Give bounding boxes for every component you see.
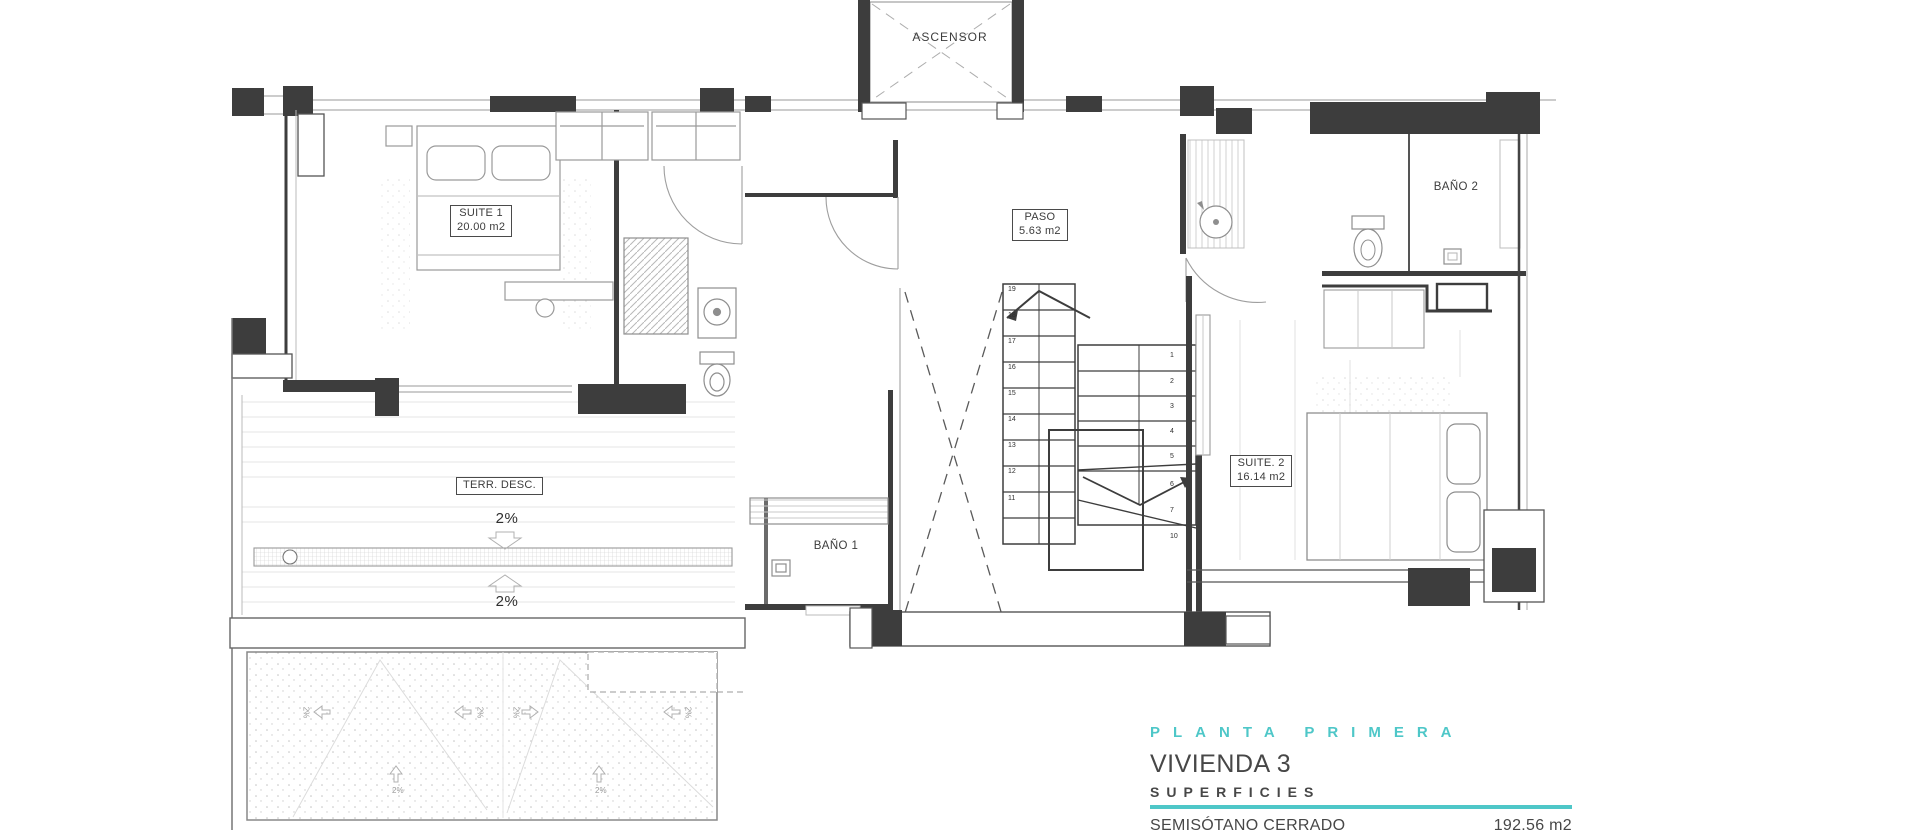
stair-step-number: 5 — [1170, 453, 1174, 460]
area-label: SEMISÓTANO CERRADO — [1150, 817, 1345, 835]
stair-step-number: 16 — [1008, 364, 1016, 371]
sink-icon — [1444, 249, 1461, 264]
room-label-paso: PASO 5.63 m2 — [1012, 209, 1068, 241]
slope-arrow-up-icon — [489, 575, 521, 592]
bano2 — [1180, 134, 1526, 276]
room-label-terraza: TERR. DESC. — [456, 477, 543, 495]
stair-step-number: 11 — [1008, 495, 1015, 502]
patio-slope-label: 2% — [301, 707, 310, 719]
stair-step-number: 17 — [1008, 338, 1016, 345]
patio — [247, 652, 745, 820]
suite1-chair — [536, 299, 554, 317]
elevator-shaft — [858, 0, 1024, 119]
stair-step-number: 14 — [1008, 416, 1016, 423]
pillow — [427, 146, 485, 180]
room-label-suite1: SUITE 1 20.00 m2 — [450, 205, 512, 237]
room-label-bano2: BAÑO 2 — [1434, 181, 1479, 193]
section-title: SUPERFICIES — [1150, 784, 1580, 800]
door-arcs — [664, 166, 1266, 302]
stair-step-number: 1 — [1170, 352, 1174, 359]
drain-icon — [283, 550, 297, 564]
pillow — [1447, 492, 1480, 552]
toilet-icon — [1354, 229, 1382, 267]
terrace-slope-up-label: 2% — [496, 593, 519, 610]
patio-notch — [588, 652, 717, 692]
room-label-suite2: SUITE. 2 16.14 m2 — [1230, 455, 1292, 487]
stair-step-number: 3 — [1170, 403, 1174, 410]
terrace-decking — [242, 402, 735, 602]
room-label-bano1: BAÑO 1 — [814, 540, 859, 552]
stair-step-number: 13 — [1008, 442, 1016, 449]
pillow — [492, 146, 550, 180]
room-label-ascensor: ASCENSOR — [912, 30, 987, 44]
stair-step-number: 7 — [1170, 507, 1174, 514]
stair-step-number: 4 — [1170, 428, 1174, 435]
slope-arrow-down-icon — [489, 532, 521, 549]
terrace-slope-down-label: 2% — [496, 510, 519, 527]
stair-upper-flight — [1003, 284, 1090, 544]
floor-plan-drawing — [0, 0, 1920, 837]
patio-slope-label: 2% — [392, 786, 404, 795]
stair-step-number: 19 — [1008, 286, 1016, 293]
stair-step-number: 10 — [1170, 533, 1178, 540]
title-block: PLANTA PRIMERA VIVIENDA 3 SUPERFICIES SE… — [1150, 724, 1580, 837]
patio-slope-label: 2% — [511, 707, 520, 719]
stair-step-number: 2 — [1170, 378, 1174, 385]
plan-title: PLANTA PRIMERA — [1150, 724, 1580, 741]
stair-step-number: 15 — [1008, 390, 1016, 397]
suite1-desk — [505, 282, 613, 300]
area-value: 192.56 m2 — [1494, 817, 1572, 835]
built-in-wardrobe — [556, 112, 740, 160]
patio-slope-label: 2% — [683, 707, 692, 719]
wardrobe-hatch — [624, 238, 688, 334]
dwelling-title: VIVIENDA 3 — [1150, 750, 1580, 779]
stair-step-number: 18 — [1008, 312, 1016, 319]
bottom-wall — [850, 608, 1270, 648]
stair-step-number: 6 — [1170, 481, 1174, 488]
patio-slope-label: 2% — [475, 707, 484, 719]
pillow — [1447, 424, 1480, 484]
divider — [1150, 805, 1572, 809]
area-row: SEMISÓTANO CERRADO 192.56 m2 — [1150, 817, 1572, 835]
floor-plan-page: { "colors": { "accent": "#4ec7c8", "ink"… — [0, 0, 1920, 837]
void-cross — [905, 292, 1002, 615]
drain-channel — [254, 548, 732, 566]
stair-step-number: 12 — [1008, 468, 1016, 475]
patio-slope-label: 2% — [595, 786, 607, 795]
